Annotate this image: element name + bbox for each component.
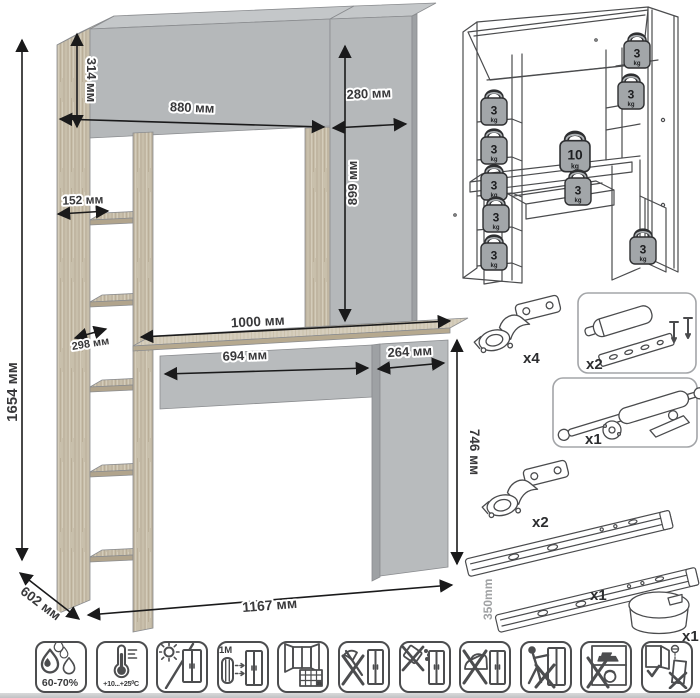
care-icon-no-dragging	[520, 641, 572, 693]
care-icon-radiator-distance: ≥1М	[217, 641, 269, 693]
hutch-front	[90, 19, 330, 138]
gas-lift-qty: x1	[585, 431, 602, 448]
care-icon-no-direct-sunlight	[156, 641, 208, 693]
care-icon-no-liquids	[399, 641, 451, 693]
hinge-icon	[476, 460, 575, 521]
hinge-qty: x4	[523, 350, 540, 367]
right-column-edge	[412, 14, 417, 322]
svg-text:899 мм: 899 мм	[345, 161, 360, 206]
hinge2-qty: x2	[532, 514, 549, 531]
load-weights: 3 kg 3 kg 3 kg 3 kg 3 kg 3 kg 3 kg 10 kg…	[481, 35, 656, 270]
sun-slash-cabinet-icon	[159, 643, 205, 689]
damper-qty: x2	[586, 356, 603, 373]
no-overload-icon	[583, 643, 629, 689]
svg-text:kg: kg	[639, 257, 646, 263]
no-axe-icon	[340, 643, 386, 689]
radiator-distance-icon: ≥1М	[219, 643, 265, 689]
svg-text:3: 3	[491, 249, 498, 263]
svg-text:kg: kg	[633, 61, 640, 67]
dim-cabinet-height: 746 мм	[457, 340, 482, 564]
care-icon-no-overload	[580, 641, 632, 693]
svg-text:kg: kg	[490, 263, 497, 269]
shelf-inner-plank	[133, 132, 153, 632]
weight-left-1: 3 kg	[481, 92, 507, 125]
svg-text:+10...+25⁰C: +10...+25⁰C	[103, 679, 140, 688]
weight-right-shelf: 3 kg	[618, 76, 644, 109]
svg-text:kg: kg	[490, 118, 497, 124]
svg-text:280 мм: 280 мм	[346, 85, 391, 102]
svg-text:3: 3	[640, 243, 647, 257]
care-icon-no-hot-objects	[459, 641, 511, 693]
weight-desktop: 10 kg	[560, 133, 590, 171]
svg-text:1000 мм: 1000 мм	[231, 313, 285, 331]
svg-text:1654 мм: 1654 мм	[4, 362, 21, 422]
window-calendar-icon: 25	[280, 643, 326, 689]
svg-text:≥1М: ≥1М	[219, 645, 232, 656]
thermometer-icon: +10...+25⁰C	[98, 643, 144, 689]
svg-text:25: 25	[317, 682, 323, 687]
dim-total-height: 1654 мм	[4, 40, 22, 560]
left-side-panel	[57, 28, 90, 614]
care-icon-acclimatization: 25	[277, 641, 329, 693]
svg-text:746 мм: 746 мм	[467, 429, 482, 475]
care-icon-anti-tip-mounting	[641, 641, 693, 693]
svg-text:152 мм: 152 мм	[62, 192, 104, 207]
anti-tip-icon	[643, 643, 689, 689]
svg-text:3: 3	[491, 179, 498, 193]
weight-left-3: 3 kg	[481, 167, 507, 200]
svg-text:3: 3	[575, 184, 582, 198]
cabinet-side-edge	[372, 344, 380, 581]
svg-text:1167 мм: 1167 мм	[242, 595, 298, 615]
svg-text:kg: kg	[627, 102, 634, 108]
weight-top-cabinet: 3 kg	[624, 35, 650, 68]
slide-length-label: 350mm	[481, 579, 495, 620]
care-icon-temperature: +10...+25⁰C	[96, 641, 148, 693]
cabinet-door	[380, 340, 448, 576]
svg-text:60-70%: 60-70%	[42, 677, 79, 689]
page-bottom-edge	[0, 693, 700, 698]
svg-text:10: 10	[567, 148, 583, 163]
care-icon-row: 60-70% +10...+25⁰C	[35, 641, 693, 693]
weight-lower-cabinet: 3 kg	[630, 231, 656, 264]
svg-text:kg: kg	[490, 157, 497, 163]
svg-text:694 мм: 694 мм	[222, 347, 267, 364]
svg-text:3: 3	[493, 211, 500, 225]
weight-left-4: 3 kg	[483, 199, 509, 232]
diagram-scene: 1654 мм 314 мм 880 мм 280 мм 899 мм 152 …	[0, 0, 700, 698]
svg-text:kg: kg	[571, 163, 579, 170]
humidity-icon: 60-70%	[37, 643, 83, 689]
svg-text:3: 3	[628, 88, 635, 102]
right-column-top-face	[330, 3, 436, 19]
svg-text:kg: kg	[574, 198, 581, 204]
svg-text:3: 3	[491, 143, 498, 157]
no-spill-icon	[401, 643, 447, 689]
hardware-panel: x4 x2	[465, 293, 700, 645]
svg-text:314 мм: 314 мм	[84, 58, 99, 103]
svg-text:3: 3	[491, 104, 498, 118]
care-icon-no-impact	[338, 641, 390, 693]
cable-grommet-icon	[629, 592, 689, 634]
care-icon-humidity: 60-70%	[35, 641, 87, 693]
weight-drawer: 3 kg	[565, 172, 591, 205]
right-column-front	[330, 16, 412, 326]
hinge-icon	[468, 295, 567, 356]
svg-text:kg: kg	[492, 225, 499, 231]
weight-left-2: 3 kg	[481, 131, 507, 164]
no-iron-icon	[462, 643, 508, 689]
right-upright	[305, 127, 330, 330]
svg-text:264 мм: 264 мм	[387, 343, 432, 360]
slides-qty: x1	[590, 587, 607, 604]
no-drag-icon	[522, 643, 568, 689]
weight-left-5: 3 kg	[481, 237, 507, 270]
svg-text:3: 3	[634, 47, 641, 61]
assembly-diagram-page: 1654 мм 314 мм 880 мм 280 мм 899 мм 152 …	[0, 0, 700, 698]
svg-text:880 мм: 880 мм	[170, 99, 215, 116]
